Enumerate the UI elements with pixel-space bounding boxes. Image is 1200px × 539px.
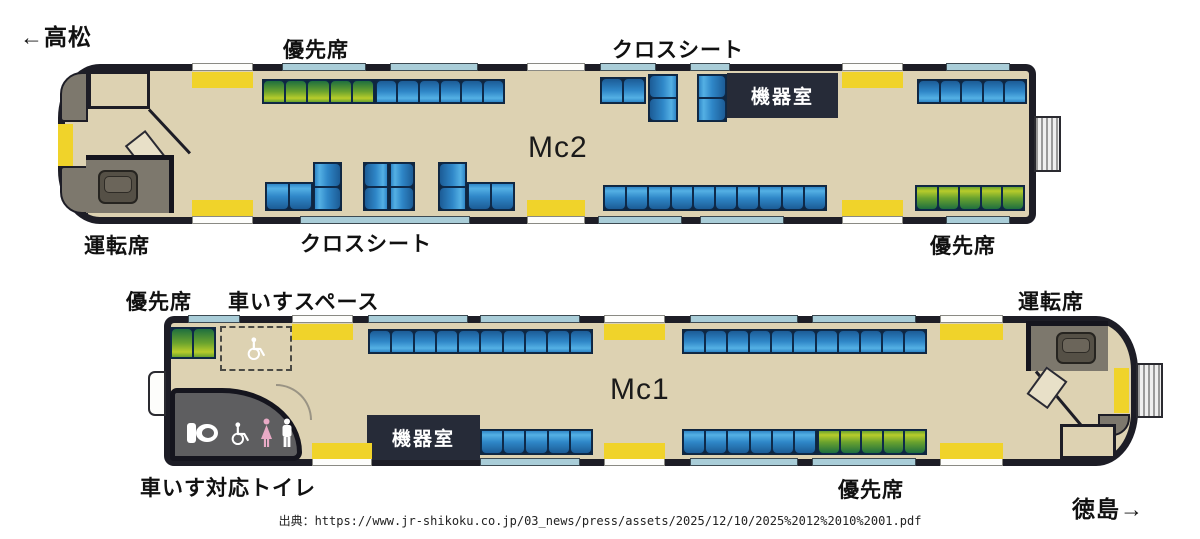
window	[390, 63, 478, 71]
seat	[693, 186, 715, 210]
seat	[483, 80, 504, 103]
mc2-blue-seat-bench	[697, 74, 727, 122]
seat	[491, 183, 514, 210]
mc2-blue-seat-bench	[389, 162, 415, 211]
door-area	[312, 443, 372, 459]
seat	[727, 330, 749, 353]
mc1-wheelchair-toilet-label: 車いす対応トイレ	[140, 472, 316, 502]
seat	[330, 80, 352, 103]
door-area	[604, 324, 665, 340]
seat	[981, 186, 1003, 210]
seat	[468, 183, 491, 210]
door-opening	[604, 458, 665, 466]
woman-icon	[259, 418, 274, 448]
door-opening	[192, 63, 253, 71]
window	[812, 458, 916, 466]
seat	[548, 430, 570, 454]
seat	[458, 330, 480, 353]
seat	[983, 80, 1005, 103]
window	[480, 315, 580, 323]
mc2-driver-seat-label: 運転席	[84, 230, 150, 260]
door-area	[192, 72, 253, 88]
seat	[904, 430, 926, 454]
seat	[266, 183, 289, 210]
window	[690, 63, 730, 71]
toilet-wheelchair-icon	[227, 420, 253, 448]
mc2-blue-seat-bench	[438, 162, 467, 211]
seat	[749, 330, 771, 353]
mc1-wheelchair-space	[220, 326, 292, 371]
window	[598, 216, 682, 224]
seat	[397, 80, 418, 103]
seat	[369, 330, 391, 353]
door-opening	[527, 63, 585, 71]
seat	[860, 330, 882, 353]
seat	[804, 186, 826, 210]
source-citation: 出典：https://www.jr-shikoku.co.jp/03_news/…	[0, 512, 1200, 529]
window	[188, 315, 240, 323]
seat	[794, 430, 816, 454]
seat	[390, 163, 414, 187]
seat	[391, 330, 413, 353]
mc1-green-seat-bench	[817, 429, 927, 455]
mc1-blue-seat-bench	[682, 329, 927, 354]
seat	[503, 430, 525, 454]
seat	[840, 430, 862, 454]
door-area	[292, 324, 353, 340]
seat	[818, 430, 840, 454]
toilet-icon	[185, 418, 221, 448]
mc1-car-number: Mc1	[610, 373, 670, 407]
window	[690, 315, 798, 323]
seat	[352, 80, 374, 103]
door-opening	[842, 216, 903, 224]
mc1-equipment-room-label: 機器室	[392, 424, 455, 451]
seat	[782, 186, 804, 210]
seat	[171, 328, 193, 358]
seat	[916, 186, 938, 210]
seat	[698, 98, 726, 121]
seat	[604, 186, 626, 210]
seat	[570, 330, 592, 353]
mc2-cross-seat-top-label: クロスシート	[612, 34, 744, 64]
seat	[759, 186, 781, 210]
mc2-cab-counter	[88, 71, 150, 109]
seat	[904, 330, 926, 353]
seat	[193, 328, 215, 358]
door-opening	[604, 315, 665, 323]
seat	[648, 186, 670, 210]
seat	[307, 80, 329, 103]
seat	[364, 163, 388, 187]
mc2-gangway	[1034, 116, 1061, 172]
seat	[918, 80, 940, 103]
seat	[715, 186, 737, 210]
mc1-priority-seat-left-label: 優先席	[126, 286, 192, 316]
mc2-priority-seat-top-label: 優先席	[283, 34, 349, 64]
seat	[649, 98, 677, 121]
door-area	[940, 443, 1003, 459]
seat	[289, 183, 312, 210]
seat	[1002, 186, 1024, 210]
seat	[503, 330, 525, 353]
mc1-gangway-right	[1136, 363, 1163, 418]
seat	[705, 430, 727, 454]
seat	[525, 330, 547, 353]
window	[300, 216, 470, 224]
window	[282, 63, 366, 71]
mc2-green-seat-bench	[262, 79, 375, 104]
seat	[959, 186, 981, 210]
seat	[481, 430, 503, 454]
mc1-equipment-room: 機器室	[367, 415, 480, 460]
seat	[1004, 80, 1026, 103]
mc2-nose-wedge-bottom	[60, 166, 88, 214]
seat	[439, 163, 466, 187]
seat	[737, 186, 759, 210]
mc2-blue-seat-bench	[600, 77, 646, 104]
window	[368, 315, 468, 323]
mc1-priority-seat-bottom-label: 優先席	[838, 474, 904, 504]
door-opening	[312, 458, 372, 466]
mc1-cab-counter	[1060, 424, 1116, 459]
seat	[727, 430, 749, 454]
window	[480, 458, 580, 466]
mc2-blue-seat-bench	[603, 185, 827, 211]
mc1-gangway-left	[148, 371, 166, 416]
seat	[683, 330, 705, 353]
seat	[390, 187, 414, 211]
seat	[601, 78, 623, 103]
man-icon	[280, 418, 294, 448]
mc2-blue-seat-bench	[313, 162, 342, 211]
seat	[793, 330, 815, 353]
seat	[816, 330, 838, 353]
mc2-front-end-door	[58, 124, 73, 166]
mc2-blue-seat-bench	[917, 79, 1027, 104]
mc1-blue-seat-bench	[480, 429, 593, 455]
mc1-front-end-door	[1114, 368, 1129, 413]
door-area	[842, 72, 903, 88]
mc1-blue-seat-bench	[368, 329, 593, 354]
door-opening	[842, 63, 903, 71]
direction-takamatsu-label: ←高松	[20, 18, 92, 52]
seat	[649, 75, 677, 98]
window	[700, 216, 784, 224]
seat	[750, 430, 772, 454]
mc2-nose-wedge-top	[60, 72, 88, 122]
seat	[883, 430, 905, 454]
wheelchair-icon	[243, 336, 269, 362]
seat	[623, 78, 645, 103]
train-floorplan-diagram: ←高松 徳島→ 優先席 クロスシート 運転席 クロスシート 優先席 Mc2 機器…	[0, 0, 1200, 539]
mc2-cross-seat-bottom-label: クロスシート	[300, 228, 432, 258]
seat	[414, 330, 436, 353]
seat	[838, 330, 860, 353]
mc2-priority-seat-right-label: 優先席	[930, 230, 996, 260]
mc2-blue-seat-bench	[467, 182, 515, 211]
seat	[480, 330, 502, 353]
door-area	[604, 443, 665, 459]
window	[812, 315, 916, 323]
door-opening	[940, 458, 1003, 466]
seat	[440, 80, 461, 103]
seat	[861, 430, 883, 454]
seat	[626, 186, 648, 210]
door-opening	[192, 216, 253, 224]
seat	[882, 330, 904, 353]
window	[946, 216, 1010, 224]
mc2-blue-seat-bench	[648, 74, 678, 122]
door-area	[842, 200, 903, 216]
mc1-driver-seat	[1056, 332, 1096, 364]
window	[600, 63, 656, 71]
mc2-equipment-room-label: 機器室	[751, 82, 814, 109]
seat	[698, 75, 726, 98]
door-area	[940, 324, 1003, 340]
mc1-wheelchair-space-label: 車いすスペース	[228, 286, 379, 316]
seat	[364, 187, 388, 211]
mc2-blue-seat-bench	[375, 79, 505, 104]
seat	[940, 80, 962, 103]
seat	[938, 186, 960, 210]
seat	[285, 80, 307, 103]
seat	[263, 80, 285, 103]
seat	[419, 80, 440, 103]
seat	[671, 186, 693, 210]
mc2-driver-seat	[98, 170, 138, 204]
seat	[314, 187, 341, 211]
window	[946, 63, 1010, 71]
seat	[772, 430, 794, 454]
door-area	[192, 200, 253, 216]
seat	[961, 80, 983, 103]
seat	[439, 187, 466, 211]
seat	[683, 430, 705, 454]
seat	[461, 80, 482, 103]
seat	[314, 163, 341, 187]
seat	[376, 80, 397, 103]
door-opening	[527, 216, 585, 224]
door-opening	[292, 315, 353, 323]
seat	[705, 330, 727, 353]
seat	[436, 330, 458, 353]
mc1-driver-seat-label: 運転席	[1018, 286, 1084, 316]
seat	[525, 430, 547, 454]
mc2-blue-seat-bench	[363, 162, 389, 211]
mc1-green-seat-bench	[170, 327, 216, 359]
window	[690, 458, 798, 466]
seat	[771, 330, 793, 353]
seat	[570, 430, 592, 454]
mc2-green-seat-bench	[915, 185, 1025, 211]
mc2-blue-seat-bench	[265, 182, 313, 211]
mc2-equipment-room: 機器室	[727, 73, 838, 118]
mc1-blue-seat-bench	[682, 429, 817, 455]
mc2-car-number: Mc2	[528, 131, 588, 165]
seat	[547, 330, 569, 353]
door-opening	[940, 315, 1003, 323]
door-area	[527, 200, 585, 216]
